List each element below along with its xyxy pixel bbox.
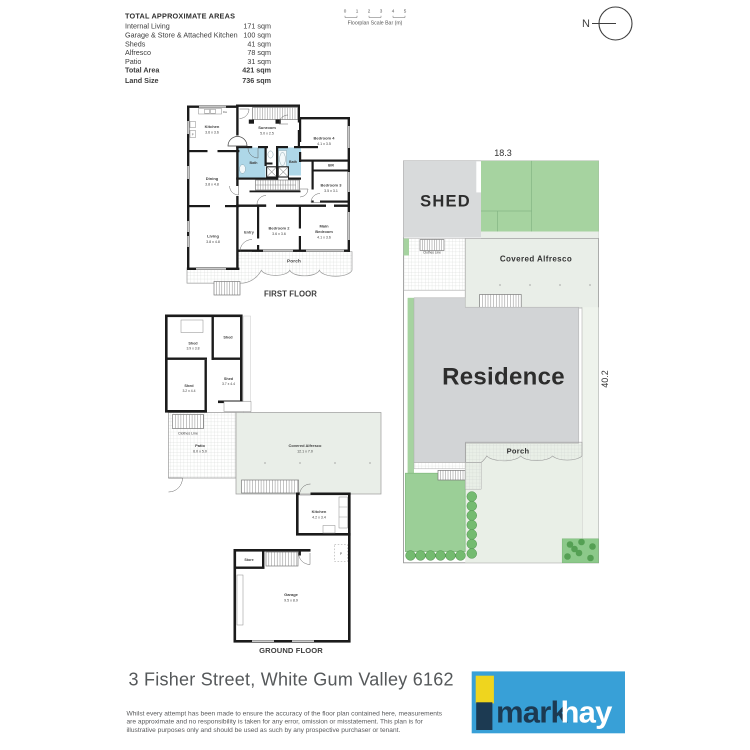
svg-text:Garage: Garage (284, 592, 299, 597)
svg-text:Kitchen: Kitchen (312, 509, 327, 514)
svg-text:78 sqm: 78 sqm (247, 48, 271, 57)
svg-text:Whilst every attempt has been: Whilst every attempt has been made to en… (127, 711, 443, 718)
svg-text:Entry: Entry (244, 231, 255, 235)
svg-text:Sunroom: Sunroom (258, 125, 276, 130)
svg-text:mark: mark (496, 695, 568, 730)
svg-text:100 sqm: 100 sqm (243, 31, 271, 40)
svg-text:Porch: Porch (507, 447, 530, 456)
svg-text:3.6 x 3.6: 3.6 x 3.6 (205, 131, 219, 135)
svg-text:Clothes Line: Clothes Line (423, 251, 441, 255)
svg-text:Shed: Shed (224, 377, 234, 381)
svg-text:1: 1 (356, 9, 359, 14)
svg-text:3.8 x 4.8: 3.8 x 4.8 (206, 240, 220, 244)
svg-text:Bedroom: Bedroom (315, 229, 333, 234)
svg-text:BIR: BIR (328, 163, 334, 167)
svg-text:Shed: Shed (188, 342, 198, 346)
svg-text:hay: hay (561, 695, 614, 730)
svg-text:TOTAL APPROXIMATE AREAS: TOTAL APPROXIMATE AREAS (125, 12, 235, 21)
svg-text:Total Area: Total Area (125, 66, 160, 75)
svg-text:Residence: Residence (442, 364, 565, 391)
svg-text:4: 4 (392, 9, 395, 14)
svg-text:Dw: Dw (223, 110, 228, 114)
svg-text:3.2 x 4.4: 3.2 x 4.4 (182, 389, 195, 393)
svg-text:GROUND FLOOR: GROUND FLOOR (259, 646, 323, 655)
svg-text:Porch: Porch (287, 259, 301, 264)
svg-text:are approximate and no respons: are approximate and no responsibility is… (127, 719, 424, 726)
svg-text:P: P (192, 133, 194, 137)
svg-text:Main: Main (319, 224, 329, 229)
svg-text:N: N (582, 18, 590, 30)
svg-text:9.5 x 8.9: 9.5 x 8.9 (284, 599, 298, 603)
svg-text:Land Size: Land Size (125, 76, 159, 85)
svg-text:6.0 x 5.0: 6.0 x 5.0 (193, 450, 207, 454)
svg-text:18.3: 18.3 (494, 148, 512, 158)
svg-text:0: 0 (344, 9, 347, 14)
svg-text:41 sqm: 41 sqm (247, 39, 271, 48)
svg-text:3.8 x 4.8: 3.8 x 4.8 (205, 183, 219, 187)
svg-text:12.1 x 7.0: 12.1 x 7.0 (297, 450, 313, 454)
svg-text:Patio: Patio (195, 443, 205, 448)
svg-text:Bedroom 3: Bedroom 3 (321, 183, 343, 188)
svg-text:Bedroom 2: Bedroom 2 (269, 226, 291, 231)
svg-text:P: P (340, 552, 343, 556)
svg-text:Garage & Store & Attached Kitc: Garage & Store & Attached Kitchen (125, 31, 238, 40)
svg-text:Alfresco: Alfresco (125, 48, 151, 57)
svg-text:421 sqm: 421 sqm (242, 66, 271, 75)
svg-text:Floorplan Scale Bar (m): Floorplan Scale Bar (m) (348, 21, 403, 27)
svg-text:171 sqm: 171 sqm (243, 22, 271, 31)
svg-text:Patio: Patio (125, 57, 141, 66)
svg-text:illustrative purposes only and: illustrative purposes only and should be… (127, 727, 401, 734)
svg-text:Bath: Bath (289, 160, 297, 164)
svg-text:Store: Store (244, 558, 253, 562)
svg-text:Clothes Line: Clothes Line (178, 432, 198, 436)
svg-text:40.2: 40.2 (600, 370, 610, 388)
svg-text:3.5 x 3.1: 3.5 x 3.1 (324, 189, 338, 193)
svg-text:Sheds: Sheds (125, 39, 146, 48)
svg-text:Covered Alfresco: Covered Alfresco (289, 443, 323, 448)
svg-text:Living: Living (207, 234, 219, 239)
svg-text:3: 3 (380, 9, 383, 14)
svg-text:Internal Living: Internal Living (125, 22, 170, 31)
svg-text:3.7 x 4.4: 3.7 x 4.4 (222, 382, 235, 386)
svg-text:5: 5 (404, 9, 407, 14)
svg-text:31 sqm: 31 sqm (247, 57, 271, 66)
svg-text:SHED: SHED (420, 193, 471, 211)
svg-text:Dining: Dining (206, 176, 219, 181)
svg-text:Kitchen: Kitchen (205, 124, 220, 129)
svg-text:5.0 x 2.5: 5.0 x 2.5 (260, 132, 274, 136)
svg-text:Bedroom 4: Bedroom 4 (314, 136, 336, 141)
svg-text:3.9 x 3.8: 3.9 x 3.8 (186, 347, 199, 351)
svg-text:3 Fisher Street, White Gum Val: 3 Fisher Street, White Gum Valley 6162 (129, 670, 454, 690)
svg-text:FIRST FLOOR: FIRST FLOOR (264, 290, 317, 299)
svg-text:4.1 x 3.5: 4.1 x 3.5 (317, 142, 331, 146)
svg-text:Covered Alfresco: Covered Alfresco (500, 255, 572, 264)
svg-text:Shed: Shed (223, 336, 233, 340)
svg-text:736 sqm: 736 sqm (242, 76, 271, 85)
svg-text:3.6 x 3.6: 3.6 x 3.6 (272, 232, 286, 236)
svg-text:4.2 x 3.4: 4.2 x 3.4 (312, 516, 326, 520)
svg-text:Shed: Shed (184, 384, 194, 388)
svg-text:2: 2 (368, 9, 371, 14)
svg-text:Bath: Bath (250, 161, 258, 165)
svg-text:4.1 x 3.6: 4.1 x 3.6 (317, 236, 331, 240)
